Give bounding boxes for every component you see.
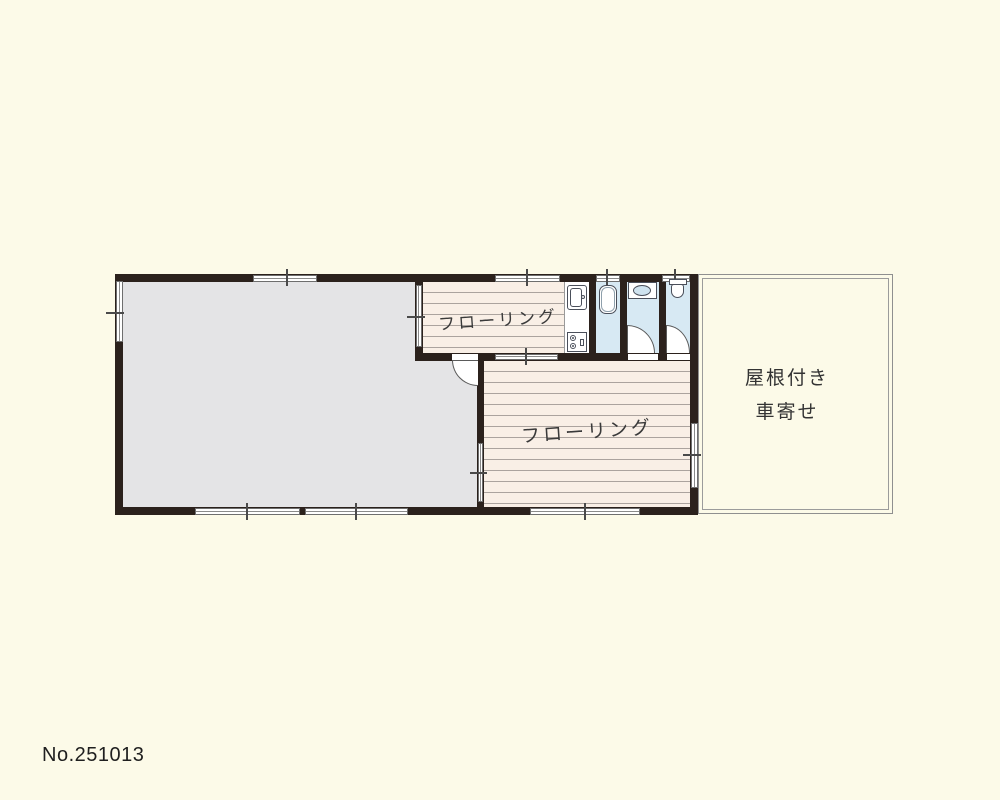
window-tick — [246, 503, 248, 520]
carport-label-line2: 車寄せ — [729, 396, 845, 430]
kitchen-sink — [567, 285, 587, 310]
door-opening — [667, 354, 690, 360]
window-tick — [470, 472, 487, 474]
wall-washroom-toilet — [659, 282, 666, 353]
bathtub — [599, 285, 617, 314]
window — [253, 275, 317, 282]
carport-label: 屋根付き 車寄せ — [729, 362, 845, 430]
wall-kitchen-bath — [589, 282, 596, 353]
window-tick — [526, 269, 528, 286]
plan-number: No.251013 — [42, 744, 144, 767]
window — [596, 275, 620, 282]
window-tick — [286, 269, 288, 286]
window-tick — [407, 316, 425, 318]
window-tick — [584, 503, 586, 520]
wall-bath-washroom — [620, 282, 627, 353]
window-tick — [106, 312, 124, 314]
window-tick — [683, 454, 701, 456]
window-tick — [606, 269, 608, 286]
toilet — [669, 279, 687, 285]
door-opening — [628, 354, 658, 360]
carport-label-line1: 屋根付き — [729, 362, 845, 396]
window-tick — [525, 348, 527, 365]
gas-stove — [567, 332, 587, 352]
washbasin — [628, 282, 657, 299]
window-tick — [355, 503, 357, 520]
floor-plan-page: フローリング フローリング 屋根付き 車寄せ No.251013 — [0, 0, 1000, 800]
